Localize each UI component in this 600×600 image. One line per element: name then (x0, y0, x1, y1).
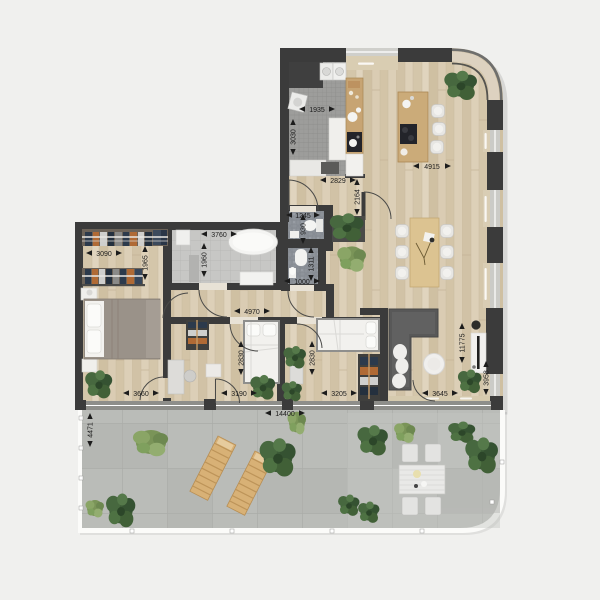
svg-text:3190: 3190 (231, 391, 247, 398)
svg-text:2830: 2830 (239, 350, 246, 366)
svg-text:1960: 1960 (202, 252, 209, 268)
svg-text:1311: 1311 (309, 256, 316, 271)
svg-text:2830: 2830 (310, 350, 317, 366)
svg-text:1965: 1965 (143, 255, 150, 271)
svg-text:3090: 3090 (96, 251, 112, 258)
svg-text:3958: 3958 (484, 370, 491, 386)
svg-text:3645: 3645 (432, 391, 448, 398)
svg-text:2164: 2164 (355, 189, 362, 205)
svg-text:1935: 1935 (309, 107, 325, 114)
svg-text:3760: 3760 (211, 232, 227, 239)
svg-text:2829: 2829 (330, 178, 346, 185)
svg-text:4970: 4970 (244, 309, 260, 316)
svg-text:4915: 4915 (424, 164, 440, 171)
svg-text:930: 930 (301, 223, 308, 235)
svg-text:3660: 3660 (133, 391, 149, 398)
svg-text:1000: 1000 (294, 279, 310, 286)
svg-text:11775: 11775 (460, 333, 467, 352)
svg-text:4471: 4471 (88, 422, 95, 438)
svg-text:3205: 3205 (331, 391, 347, 398)
svg-text:3030: 3030 (291, 129, 298, 145)
svg-text:14400: 14400 (275, 411, 295, 418)
